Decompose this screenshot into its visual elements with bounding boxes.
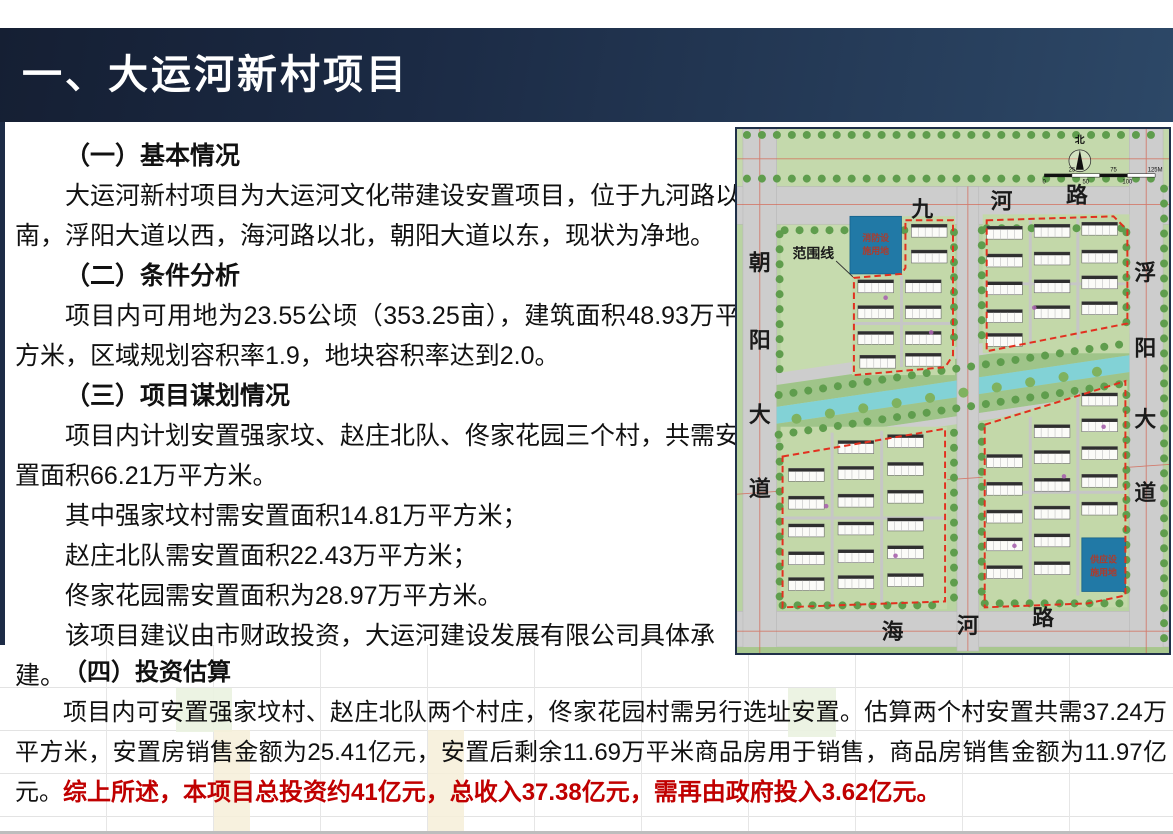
- section-3-body: 项目内计划安置强家坟、赵庄北队、佟家花园三个村，共需安置面积66.21万平方米。: [15, 416, 740, 496]
- fire-plot-label-line1: 消防设: [862, 232, 889, 243]
- svg-text:100: 100: [1122, 180, 1133, 186]
- text-content: （一）基本情况 大运河新村项目为大运河文化带建设安置项目，位于九河路以南，浮阳大…: [15, 136, 740, 696]
- west-road-label: 朝: [749, 250, 771, 275]
- svg-text:75: 75: [1110, 168, 1117, 174]
- svg-text:125M: 125M: [1148, 168, 1163, 174]
- east-road-label: 阳: [1134, 335, 1156, 360]
- west-road-label: 阳: [749, 327, 771, 352]
- supply-facility-plot: 供应设 施用地: [1082, 538, 1126, 592]
- north-road-label: 河: [991, 188, 1013, 213]
- section-4-conclusion: 综上所述，本项目总投资约41亿元，总收入37.38亿元，需再由政府投入3.62亿…: [63, 779, 940, 806]
- section-3-line-2: 赵庄北队需安置面积22.43万平方米；: [15, 536, 740, 576]
- svg-text:25: 25: [1069, 168, 1076, 174]
- north-road-label: 九: [910, 196, 933, 221]
- east-road-label: 道: [1134, 480, 1156, 505]
- svg-text:50: 50: [1082, 180, 1089, 186]
- south-road-label: 海: [882, 619, 904, 644]
- section-2-body: 项目内可用地为23.55公顷（353.25亩），建筑面积48.93万平方米，区域…: [15, 296, 740, 376]
- section-3-line-3: 佟家花园需安置面积为28.97万平方米。: [15, 576, 740, 616]
- presentation-slide: 一、大运河新村项目 （一）基本情况 大运河新村项目为大运河文化带建设安置项目，位…: [0, 0, 1173, 834]
- supply-plot-label-line2: 施用地: [1090, 567, 1117, 578]
- south-road-label: 路: [1032, 605, 1054, 630]
- section-4-body: 项目内可安置强家坟村、赵庄北队两个村庄，佟家花园村需另行选址安置。估算两个村安置…: [15, 693, 1167, 813]
- north-road-label: 路: [1066, 182, 1088, 207]
- title-bar: 一、大运河新村项目: [0, 28, 1173, 122]
- fire-facility-plot: 消防设 施用地: [850, 216, 902, 274]
- section-1-body: 大运河新村项目为大运河文化带建设安置项目，位于九河路以南，浮阳大道以西，海河路以…: [15, 176, 740, 256]
- investment-section: （四）投资估算 项目内可安置强家坟村、赵庄北队两个村庄，佟家花园村需另行选址安置…: [15, 653, 1167, 813]
- site-plan-map: 消防设 施用地 供应设 施用地 范围线 九: [735, 127, 1171, 655]
- boundary-label: 范围线: [792, 245, 834, 261]
- section-2-heading: （二）条件分析: [15, 256, 740, 296]
- compass-north-label: 北: [1075, 133, 1085, 146]
- slide-title: 一、大运河新村项目: [0, 28, 1173, 122]
- fire-plot-label-line2: 施用地: [862, 245, 889, 256]
- left-accent-strip: [0, 122, 5, 645]
- south-road: [737, 611, 1169, 647]
- section-3-heading: （三）项目谋划情况: [15, 376, 740, 416]
- west-road-label: 大: [749, 402, 771, 427]
- section-3-line-1: 其中强家坟村需安置面积14.81万平方米；: [15, 496, 740, 536]
- south-road-label: 河: [957, 613, 979, 638]
- east-road-label: 大: [1134, 407, 1156, 432]
- east-road-label: 浮: [1134, 260, 1156, 285]
- section-4-heading: （四）投资估算: [15, 653, 1167, 693]
- site-plan-svg: 消防设 施用地 供应设 施用地 范围线 九: [737, 129, 1169, 653]
- west-road-label: 道: [749, 476, 771, 501]
- section-1-heading: （一）基本情况: [15, 136, 740, 176]
- supply-plot-label-line1: 供应设: [1089, 554, 1117, 565]
